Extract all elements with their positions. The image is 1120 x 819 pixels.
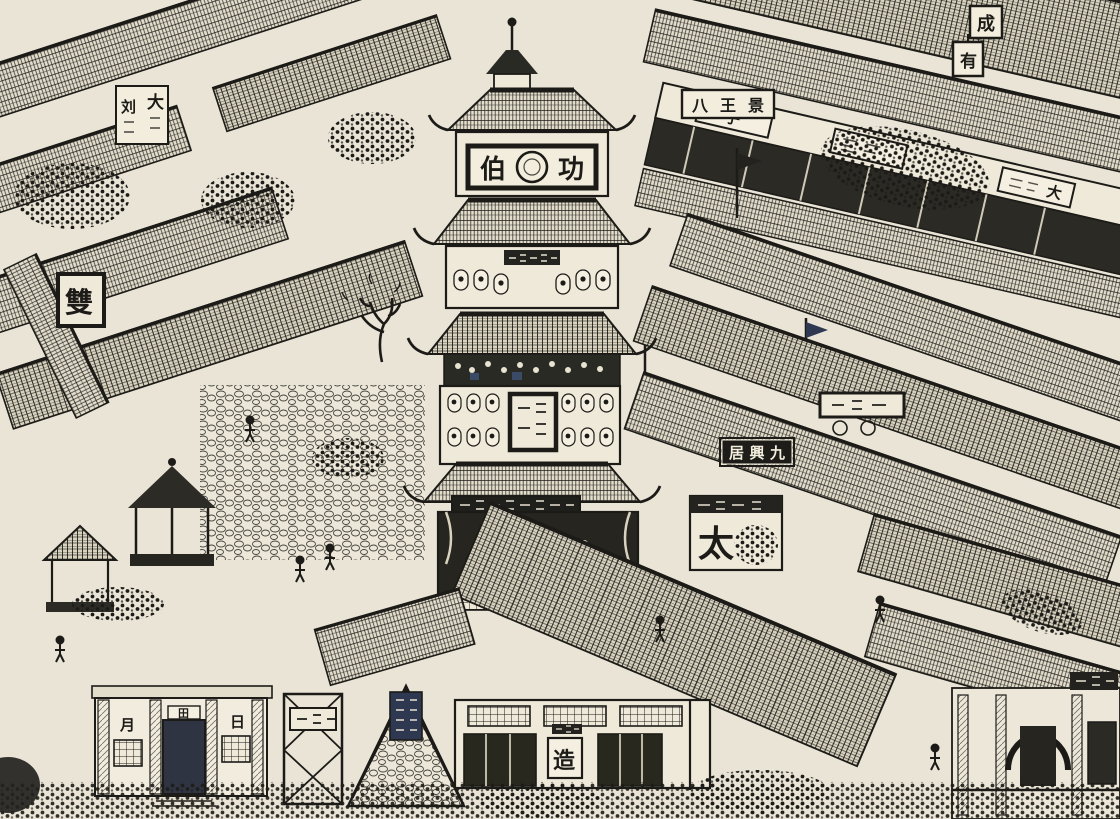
corner-sign-char: 成 <box>977 13 995 35</box>
tai-stall: 太 <box>690 496 782 570</box>
panorama-canvas: 大 刘 雙 子 大 八王景 <box>0 0 1120 819</box>
pagoda-storey-3 <box>440 386 620 464</box>
corner-sign-top-right: 成 <box>970 6 1002 38</box>
shop-sign-top-left-char-right: 大 <box>147 92 164 113</box>
black-shop-sign-text: 居興九 <box>729 444 785 462</box>
framed-panel <box>510 394 556 450</box>
crowd-left-lower <box>72 587 164 621</box>
artwork-panorama: 大 刘 雙 子 大 八王景 <box>0 0 1120 819</box>
pagoda-plaque-char-left: 伯 <box>480 154 506 185</box>
facade-window-left <box>114 740 142 766</box>
framed-sign-left-char: 雙 <box>65 286 93 319</box>
lantern-sign-char: 有 <box>960 51 977 72</box>
pagoda-storey-2 <box>446 246 618 308</box>
tai-stall-char: 太 <box>698 524 734 565</box>
zao-sign-char: 造 <box>553 749 575 774</box>
pagoda-gallery-band <box>444 354 620 386</box>
banner-top-right-text: 八王景 <box>691 96 764 115</box>
pagoda-plaque-char-right: 功 <box>558 155 584 185</box>
facade-window-right <box>222 736 250 762</box>
black-shop-sign: 居興九 <box>720 438 794 466</box>
bottom-center-shops: 造 <box>455 700 710 790</box>
blue-vertical-sign <box>390 692 422 740</box>
shop-sign-top-left-char-left: 刘 <box>121 98 136 116</box>
pagoda-plaque-storey: 伯 功 <box>456 132 608 196</box>
stall-crowd <box>734 525 778 565</box>
shop-sign-top-left: 大 刘 <box>116 86 168 144</box>
stone-courtyard <box>200 385 425 560</box>
facade-char-right: 日 <box>230 713 245 731</box>
facade-char-left: 月 <box>119 716 135 734</box>
framed-sign-left: 雙 <box>58 274 104 326</box>
banner-top-right: 八王景 <box>682 90 774 118</box>
facade-char-center: 田 <box>178 707 189 720</box>
